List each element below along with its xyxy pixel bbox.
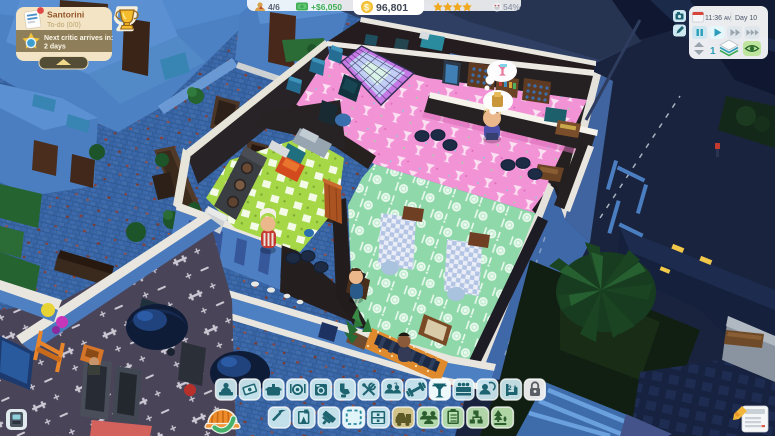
svg-text:To-do (0/0): To-do (0/0)	[47, 22, 81, 29]
svg-text:?: ?	[394, 383, 398, 389]
svg-text:2 1: 2 1	[508, 385, 517, 392]
svg-text:11:36 AM: 11:36 AM	[705, 15, 731, 22]
svg-text:1: 1	[710, 46, 716, 57]
svg-text:+$6,050: +$6,050	[311, 2, 342, 12]
svg-text:$: $	[364, 3, 369, 13]
svg-text:2 days: 2 days	[44, 44, 66, 51]
svg-text:Day 10: Day 10	[735, 15, 757, 22]
svg-text:Santorini: Santorini	[47, 10, 84, 20]
svg-text:54%: 54%	[503, 2, 520, 12]
svg-text:Next critic arrives in:: Next critic arrives in:	[44, 35, 113, 42]
svg-text:4/6: 4/6	[268, 2, 280, 12]
svg-text:96,801: 96,801	[376, 2, 408, 14]
